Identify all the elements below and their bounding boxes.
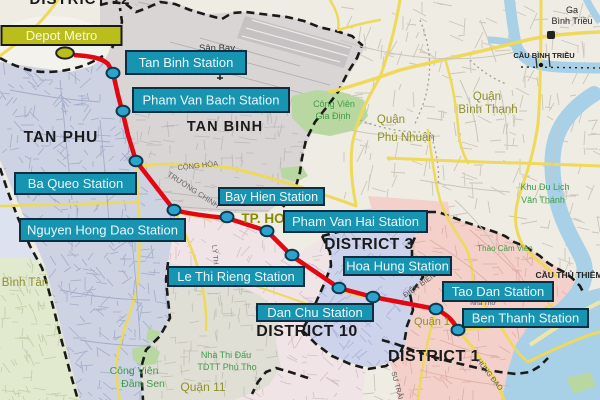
svg-text:Văn Thánh: Văn Thánh [521,195,565,205]
svg-text:Đầm Sen: Đầm Sen [121,378,165,390]
svg-text:Ba Queo Station: Ba Queo Station [28,176,123,191]
svg-text:DISTRICT 10: DISTRICT 10 [256,323,358,340]
svg-text:Bình Thạnh: Bình Thạnh [458,104,517,116]
svg-text:Tan Binh Station: Tan Binh Station [139,55,234,70]
svg-text:Quận 11: Quận 11 [180,380,225,394]
svg-text:Khu Du Lịch: Khu Du Lịch [520,182,569,192]
svg-text:Hoa Hung Station: Hoa Hung Station [346,259,449,274]
svg-text:DISTRICT 3: DISTRICT 3 [324,236,413,253]
svg-text:Tao Dan Station: Tao Dan Station [452,284,545,299]
svg-text:Bay Hien Station: Bay Hien Station [225,190,318,204]
svg-text:Nhà Thi Đấu: Nhà Thi Đấu [201,350,251,360]
svg-text:TAN PHU: TAN PHU [24,129,99,146]
svg-text:Gia Định: Gia Định [315,111,350,121]
svg-text:Phú Nhuận: Phú Nhuận [377,132,435,144]
svg-text:CẦU THỦ THIÊM: CẦU THỦ THIÊM [535,269,600,280]
svg-text:TAN BINH: TAN BINH [187,119,263,135]
svg-text:Công Viên: Công Viên [313,99,355,109]
svg-text:Bình Tân: Bình Tân [2,277,48,289]
svg-text:DISTRICT 1: DISTRICT 1 [388,348,480,365]
svg-text:Bình Triều: Bình Triều [551,16,592,26]
svg-text:Ben Thanh Station: Ben Thanh Station [472,311,579,326]
svg-text:CẦU BÌNH TRIỀU: CẦU BÌNH TRIỀU [513,50,574,60]
svg-text:Dan Chu Station: Dan Chu Station [267,305,362,320]
svg-text:Quận: Quận [377,114,405,126]
svg-text:Công Viên: Công Viên [110,365,159,377]
svg-text:Le Thi Rieng Station: Le Thi Rieng Station [177,269,295,284]
svg-text:Quận 1: Quận 1 [414,316,450,328]
svg-text:Thảo Cầm Viên: Thảo Cầm Viên [477,244,532,253]
svg-text:DISTRICT 12: DISTRICT 12 [29,0,130,8]
svg-text:Quận: Quận [473,91,501,103]
svg-text:Pham Van Bach Station: Pham Van Bach Station [142,93,279,108]
svg-text:TDTT Phú Thọ: TDTT Phú Thọ [197,362,256,372]
svg-text:TP. HO: TP. HO [241,211,284,226]
svg-text:Pham Van Hai Station: Pham Van Hai Station [292,214,419,229]
svg-text:Nguyen Hong Dao Station: Nguyen Hong Dao Station [27,223,178,238]
svg-text:Ga: Ga [566,5,578,15]
svg-text:Depot Metro: Depot Metro [26,28,98,43]
